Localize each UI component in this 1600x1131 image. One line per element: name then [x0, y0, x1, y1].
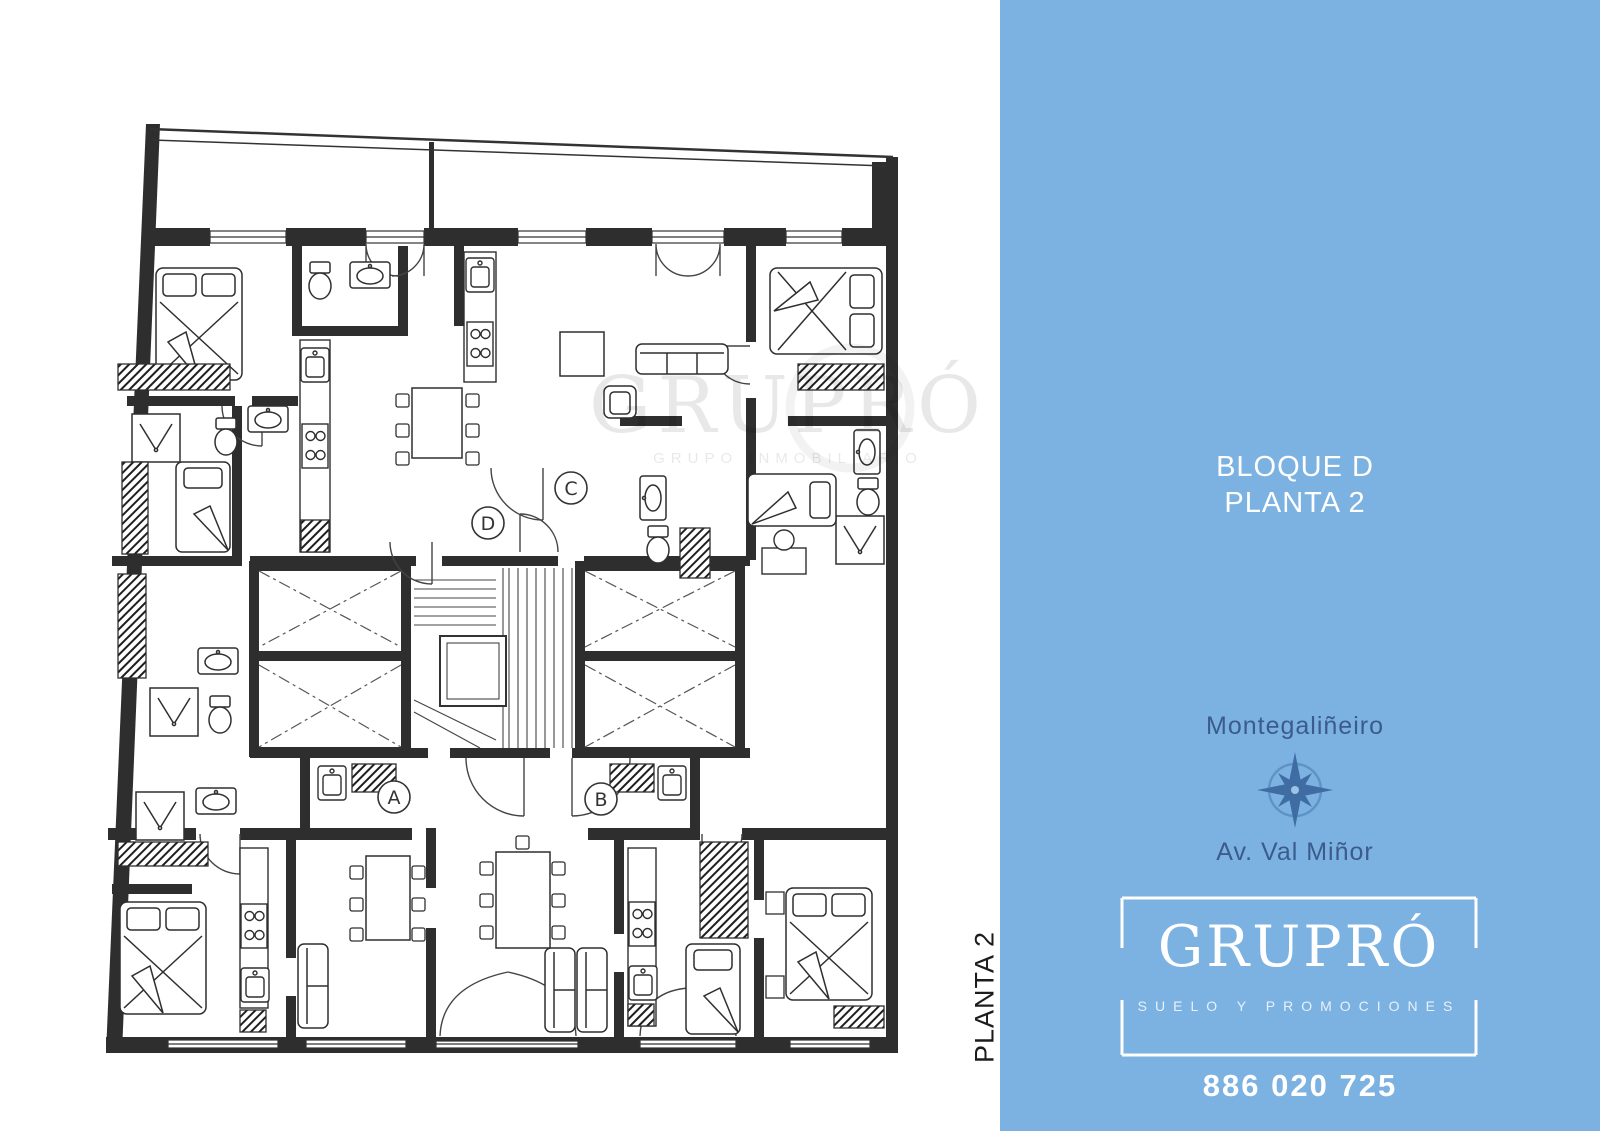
- elevator: [440, 636, 506, 706]
- floorplan-drawing: GRUPRÓ GRUPO INMOBILIARIO A B C D: [0, 0, 1000, 1131]
- terrace-parapet: [150, 129, 893, 166]
- watermark-text: GRUPRÓ: [589, 358, 987, 451]
- brand-tagline: SUELO Y PROMOCIONES: [1120, 998, 1478, 1014]
- phone-number: 886 020 725: [1000, 1068, 1600, 1104]
- plan-watermark: GRUPRÓ GRUPO INMOBILIARIO: [589, 348, 987, 468]
- unit-label-b: B: [594, 789, 607, 811]
- block-title-line1: BLOQUE D: [1000, 449, 1590, 485]
- shaft-right: [580, 566, 740, 752]
- plan-side-label: PLANTA 2: [970, 931, 1001, 1063]
- floorplan-area: GRUPRÓ GRUPO INMOBILIARIO A B C D PLANTA…: [0, 0, 1000, 1131]
- unit-label-c: C: [564, 478, 577, 500]
- shaft-left: [254, 566, 406, 752]
- block-title-line2: PLANTA 2: [1000, 485, 1590, 521]
- development-name: Montegaliñeiro: [1000, 712, 1590, 741]
- street-name: Av. Val Miñor: [1000, 838, 1590, 867]
- watermark-subtext: GRUPO INMOBILIARIO: [653, 450, 923, 467]
- brand-logo: GRUPRÓ SUELO Y PROMOCIONES: [1120, 896, 1478, 1057]
- furniture-lower: [118, 836, 884, 1034]
- compass-icon: [1253, 748, 1337, 832]
- unit-label-a: A: [388, 787, 401, 809]
- unit-label-d: D: [481, 513, 496, 535]
- brand-name: GRUPRÓ: [1120, 914, 1478, 980]
- block-floor-title: BLOQUE D PLANTA 2: [1000, 449, 1590, 521]
